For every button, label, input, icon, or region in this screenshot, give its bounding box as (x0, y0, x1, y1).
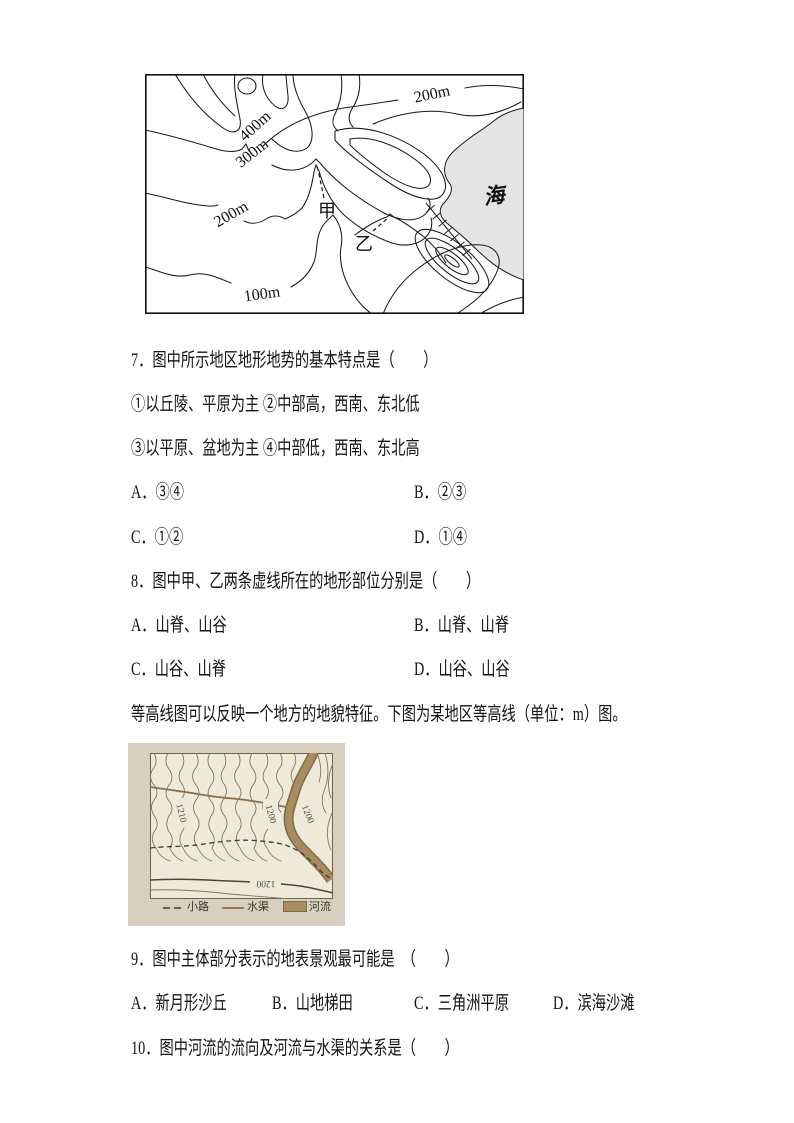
question-9-option-b: B．山地梯田 (272, 994, 353, 1013)
question-10-stem: 10．图中河流的流向及河流与水渠的关系是（ ） (131, 1039, 459, 1058)
question-8-stem: 8．图中甲、乙两条虚线所在的地形部位分别是（ ） (131, 572, 480, 591)
question-9-option-d: D．滨海沙滩 (553, 994, 635, 1013)
question-7-option-c: C．①② (131, 528, 183, 547)
question-9-stem: 9．图中主体部分表示的地表景观最可能是 （ ） (131, 950, 459, 969)
question-7-option-b: B．②③ (414, 483, 466, 502)
question-9-option-a: A．新月形沙丘 (131, 994, 227, 1013)
legend-river-swatch (283, 901, 307, 912)
figure2-map: 1210 1200 1200 1200 (150, 753, 333, 899)
question-9-option-c: C．三角洲平原 (414, 994, 509, 1013)
question-7-option-d: D．①④ (414, 528, 467, 547)
legend-canal-label: 水渠 (247, 901, 269, 913)
question-7-option-a: A．③④ (131, 483, 184, 502)
figure2-legend: 小路 水渠 河流 (128, 901, 345, 923)
question-8-option-a: A．山脊、山谷 (131, 616, 227, 635)
legend-canal-sample (221, 905, 245, 911)
elevation-label-1200-bottom: 1200 (256, 878, 275, 888)
question-7-sub1: ①以丘陵、平原为主 ②中部高，西南、东北低 (131, 395, 420, 414)
question-8-option-b: B．山脊、山脊 (414, 616, 509, 635)
question-7-sub2: ③以平原、盆地为主 ④中部低，西南、东北高 (131, 439, 420, 458)
legend-path-sample (162, 905, 186, 911)
question-7-stem: 7．图中所示地区地形地势的基本特点是（ ） (131, 351, 437, 370)
section-intro-text: 等高线图可以反映一个地方的地貌特征。下图为某地区等高线（单位：m）图。 (131, 705, 627, 724)
question-8-option-c: C．山谷、山脊 (131, 660, 226, 679)
exam-page: 200m 400m 300m 200m 100m 甲 乙 海 7．图中所示地区地… (0, 0, 794, 1123)
marker-jia: 甲 (318, 201, 336, 221)
contour-map-figure1: 200m 400m 300m 200m 100m 甲 乙 海 (145, 74, 524, 314)
question-8-option-d: D．山谷、山谷 (414, 660, 510, 679)
legend-river-label: 河流 (309, 901, 331, 913)
scanned-contour-figure2: 1210 1200 1200 1200 小路 水渠 河流 (128, 743, 345, 926)
marker-yi: 乙 (355, 234, 373, 254)
legend-path-label: 小路 (187, 901, 209, 913)
